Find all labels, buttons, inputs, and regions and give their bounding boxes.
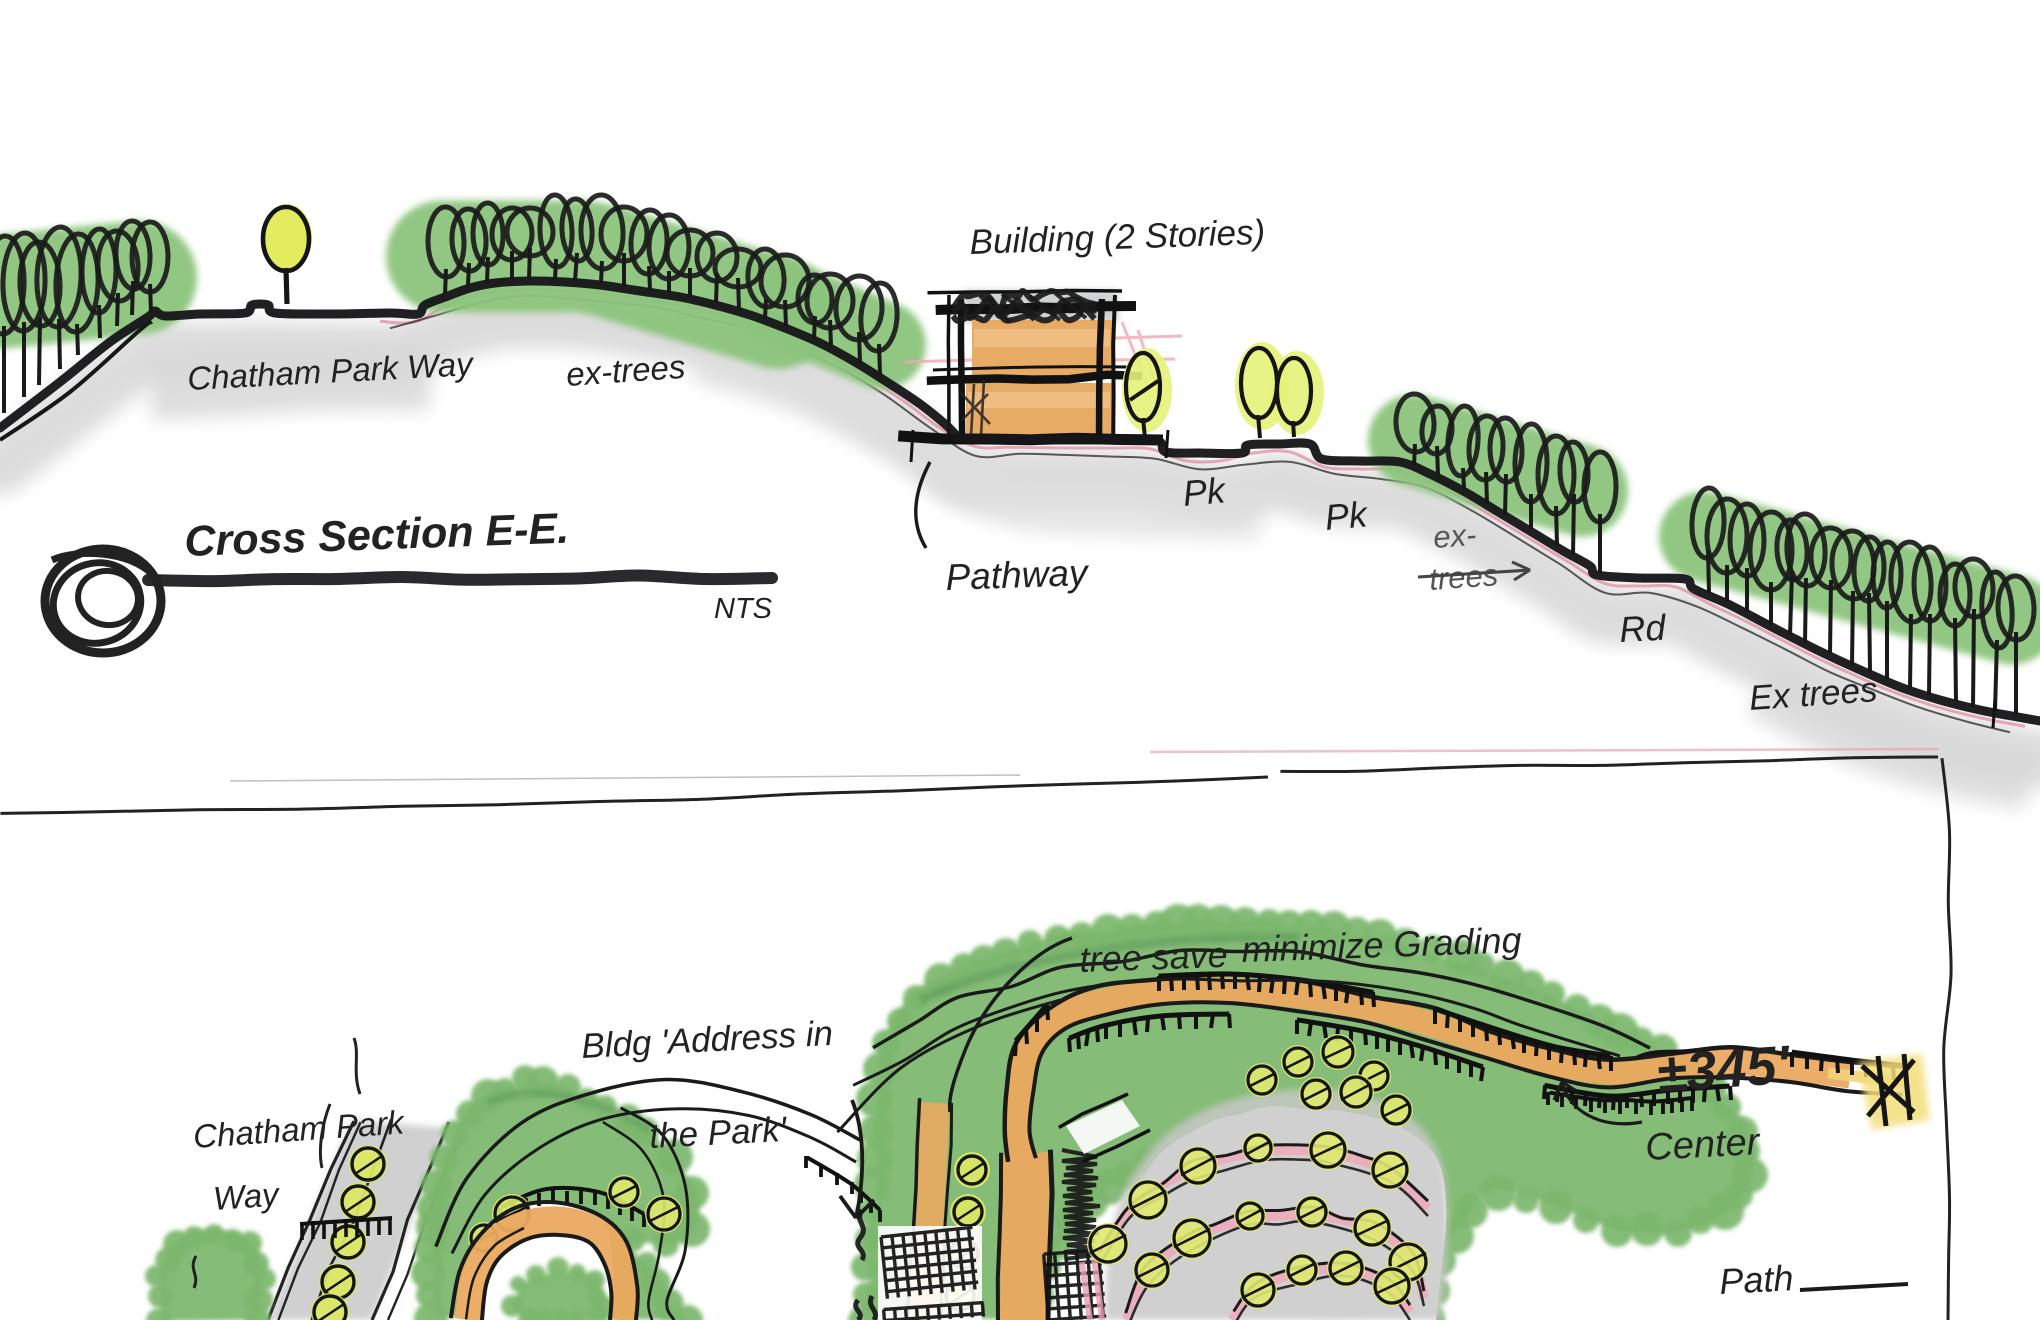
svg-text:NTS: NTS	[714, 593, 773, 625]
svg-text:Pk: Pk	[1181, 469, 1228, 514]
svg-text:ex-: ex-	[1432, 517, 1477, 555]
svg-text:Way: Way	[212, 1175, 282, 1217]
svg-text:±345': ±345'	[1655, 1035, 1794, 1104]
svg-text:the Park': the Park'	[648, 1110, 788, 1156]
svg-text:Path: Path	[1718, 1257, 1794, 1302]
svg-text:Pathway: Pathway	[945, 552, 1091, 598]
svg-text:Pk: Pk	[1323, 493, 1370, 538]
svg-text:Center: Center	[1644, 1121, 1761, 1169]
svg-text:Rd: Rd	[1618, 607, 1667, 650]
svg-text:tree save: tree save	[1079, 934, 1228, 980]
